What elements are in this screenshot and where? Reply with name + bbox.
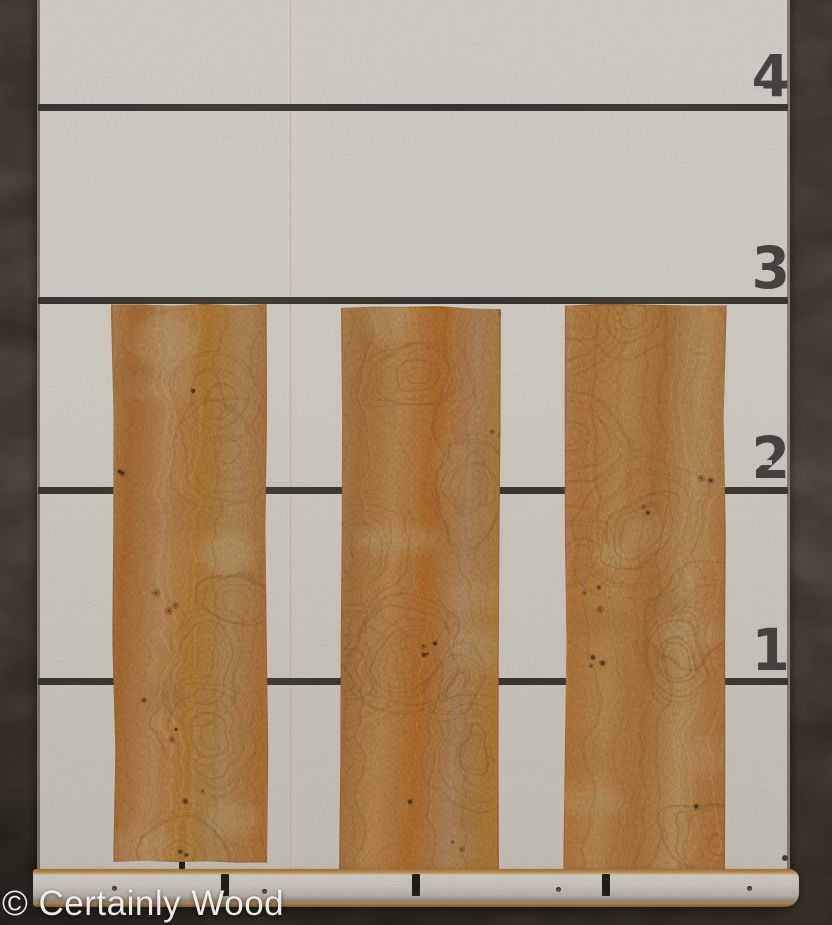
number-label: 1 (752, 616, 790, 684)
measure-number-3: 3 (748, 242, 790, 294)
measure-number-4: 4 (748, 50, 790, 102)
stencil-gap (762, 460, 772, 465)
number-label: 4 (752, 42, 790, 110)
veneer-sheet-3 (563, 304, 726, 872)
measure-number-1: 1 (748, 624, 790, 676)
stencil-gap (754, 265, 762, 270)
veneer-sheet-2 (339, 306, 501, 875)
rail-screw-dot (747, 886, 752, 891)
rail-tick-2 (412, 874, 420, 896)
board-seam (290, 0, 291, 872)
veneer-sheet-1 (111, 303, 269, 864)
board-screw-dot (782, 855, 788, 861)
watermark-text: © Certainly Wood (2, 884, 284, 924)
number-label: 2 (752, 424, 790, 492)
measure-line-3 (38, 297, 788, 304)
veneer-product-photo: 4 3 2 1 (0, 0, 832, 925)
rail-tick-3 (602, 874, 610, 896)
measure-number-2: 2 (748, 432, 790, 484)
measure-line-4 (38, 104, 788, 111)
rail-screw-dot (556, 887, 561, 892)
stencil-gap (754, 86, 764, 91)
